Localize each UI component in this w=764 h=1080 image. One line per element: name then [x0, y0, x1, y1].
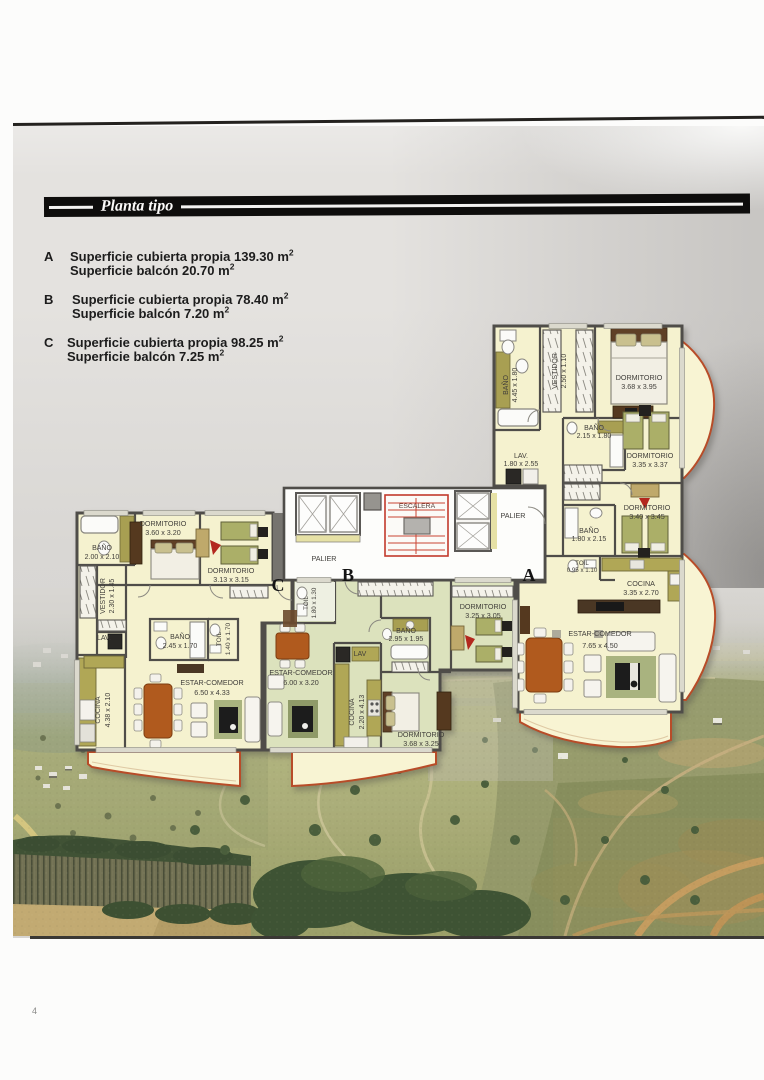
svg-text:7.65 x 4.50: 7.65 x 4.50: [582, 641, 618, 650]
svg-text:4.38 x 2.10: 4.38 x 2.10: [105, 693, 112, 728]
svg-text:1.40 x 1.70: 1.40 x 1.70: [225, 623, 232, 656]
svg-text:3.25 x 3.05: 3.25 x 3.05: [465, 611, 501, 620]
svg-text:2.95 x 1.95: 2.95 x 1.95: [389, 636, 424, 643]
svg-text:2.15 x 1.80: 2.15 x 1.80: [577, 433, 612, 440]
svg-text:COCINA: COCINA: [627, 579, 655, 588]
svg-text:ESTAR-COMEDOR: ESTAR-COMEDOR: [180, 678, 243, 687]
svg-text:TOIL: TOIL: [216, 631, 223, 646]
svg-text:BAÑO: BAÑO: [396, 626, 416, 635]
svg-text:3.60 x 3.20: 3.60 x 3.20: [145, 528, 181, 537]
svg-text:0.95 x 1.10: 0.95 x 1.10: [567, 567, 598, 574]
svg-text:ESTAR-COMEDOR: ESTAR-COMEDOR: [568, 629, 631, 638]
svg-text:BAÑO: BAÑO: [584, 423, 604, 432]
svg-text:TOIL: TOIL: [575, 560, 589, 567]
svg-text:6.00 x 3.20: 6.00 x 3.20: [283, 678, 319, 687]
svg-text:1.80 x 1.30: 1.80 x 1.30: [311, 587, 318, 618]
svg-text:2.20 x 4.13: 2.20 x 4.13: [359, 695, 366, 730]
svg-text:6.50 x 4.33: 6.50 x 4.33: [194, 688, 230, 697]
svg-text:VESTIDOR: VESTIDOR: [100, 578, 107, 614]
svg-text:B: B: [342, 565, 354, 585]
svg-text:4.45 x 1.80: 4.45 x 1.80: [512, 368, 519, 403]
svg-text:LAV.: LAV.: [97, 635, 111, 642]
svg-text:3.35 x 3.37: 3.35 x 3.37: [632, 460, 668, 469]
svg-text:COCINA: COCINA: [349, 698, 356, 726]
svg-text:3.40 x 3.45: 3.40 x 3.45: [629, 512, 665, 521]
svg-text:2.00 x 2.10: 2.00 x 2.10: [85, 554, 120, 561]
svg-text:DORMITORIO: DORMITORIO: [460, 602, 507, 611]
svg-text:DORMITORIO: DORMITORIO: [398, 730, 445, 739]
svg-text:ESCALERA: ESCALERA: [399, 503, 436, 510]
svg-text:LAV.: LAV.: [514, 453, 528, 460]
svg-text:2.50 x 1.10: 2.50 x 1.10: [561, 354, 568, 389]
svg-text:PALIER: PALIER: [311, 554, 336, 563]
svg-text:C: C: [272, 575, 285, 595]
svg-text:BAÑO: BAÑO: [170, 632, 190, 641]
svg-text:1.80 x 2.55: 1.80 x 2.55: [504, 461, 539, 468]
svg-text:2.45 x 1.70: 2.45 x 1.70: [163, 643, 198, 650]
svg-text:DORMITORIO: DORMITORIO: [140, 519, 187, 528]
svg-text:PALIER: PALIER: [500, 511, 525, 520]
svg-text:LAV: LAV: [354, 651, 367, 658]
svg-text:3.13 x 3.15: 3.13 x 3.15: [213, 575, 249, 584]
svg-text:DORMITORIO: DORMITORIO: [624, 503, 671, 512]
svg-text:DORMITORIO: DORMITORIO: [616, 373, 663, 382]
svg-text:ESTAR-COMEDOR: ESTAR-COMEDOR: [269, 668, 332, 677]
svg-text:TOIL: TOIL: [303, 596, 310, 610]
svg-text:COCINA: COCINA: [95, 696, 102, 724]
svg-text:DORMITORIO: DORMITORIO: [208, 566, 255, 575]
svg-text:3.68 x 3.25: 3.68 x 3.25: [403, 739, 439, 748]
svg-text:3.68 x 3.95: 3.68 x 3.95: [621, 382, 657, 391]
svg-text:VESTIDOR: VESTIDOR: [552, 353, 559, 389]
svg-text:BAÑO: BAÑO: [501, 375, 510, 395]
svg-text:BAÑO: BAÑO: [579, 526, 599, 535]
svg-text:DORMITORIO: DORMITORIO: [627, 451, 674, 460]
svg-text:BAÑO: BAÑO: [92, 543, 112, 552]
svg-text:1.80 x 2.15: 1.80 x 2.15: [572, 536, 607, 543]
svg-text:3.35 x 2.70: 3.35 x 2.70: [623, 588, 659, 597]
svg-text:A: A: [523, 565, 536, 585]
svg-text:2.30 x 1.45: 2.30 x 1.45: [109, 579, 116, 614]
